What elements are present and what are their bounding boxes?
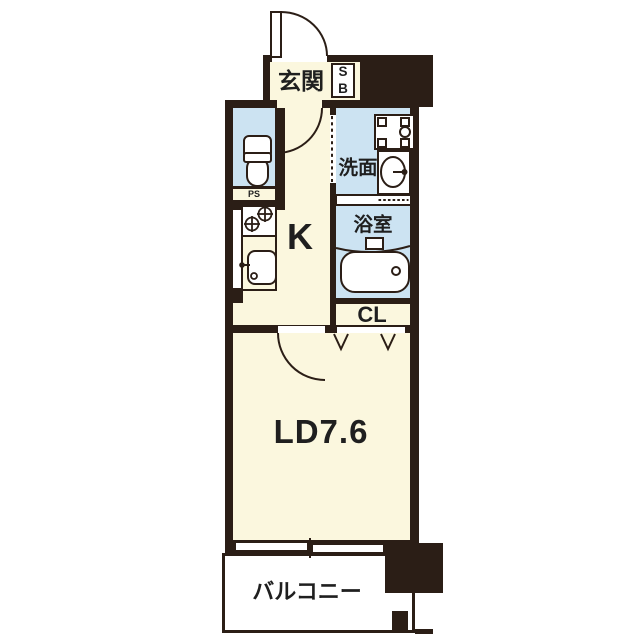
genkan-hall-opening xyxy=(277,100,322,108)
genkan-label: 玄関 xyxy=(269,66,333,97)
bathroom-door-opening xyxy=(337,196,410,204)
living-dining-label: LD7.6 xyxy=(240,406,402,456)
kitchen-label: K xyxy=(280,210,320,264)
kitchen-counter-strip xyxy=(233,210,243,288)
pillar-block-large xyxy=(385,543,443,593)
sliding-window-pane-right xyxy=(313,545,383,552)
kitchen-floor-left xyxy=(233,303,243,325)
sliding-window-pane-left xyxy=(236,543,307,550)
closet-label: CL xyxy=(346,302,398,327)
shoe-box-label-bottom: B xyxy=(338,81,348,97)
ld-door-leaf xyxy=(278,326,325,333)
pillar-block-small xyxy=(392,611,408,631)
shoe-box: S B xyxy=(331,63,355,98)
floorplan-canvas: 玄関 S B PS 洗面 浴室 K CL LD7.6 バルコニー xyxy=(0,0,640,640)
hallway-floor xyxy=(285,108,330,210)
bathroom-label: 浴室 xyxy=(347,213,399,238)
balcony-rail-extension xyxy=(415,629,433,634)
pipe-space-label: PS xyxy=(233,188,275,200)
entrance-door-icon xyxy=(271,12,327,57)
entrance-opening xyxy=(272,53,327,62)
room-toilet xyxy=(233,108,275,186)
balcony-label: バルコニー xyxy=(224,579,390,605)
washroom-label: 洗面 xyxy=(332,157,384,181)
room-washroom xyxy=(336,108,410,194)
shoe-box-label-top: S xyxy=(338,64,347,80)
